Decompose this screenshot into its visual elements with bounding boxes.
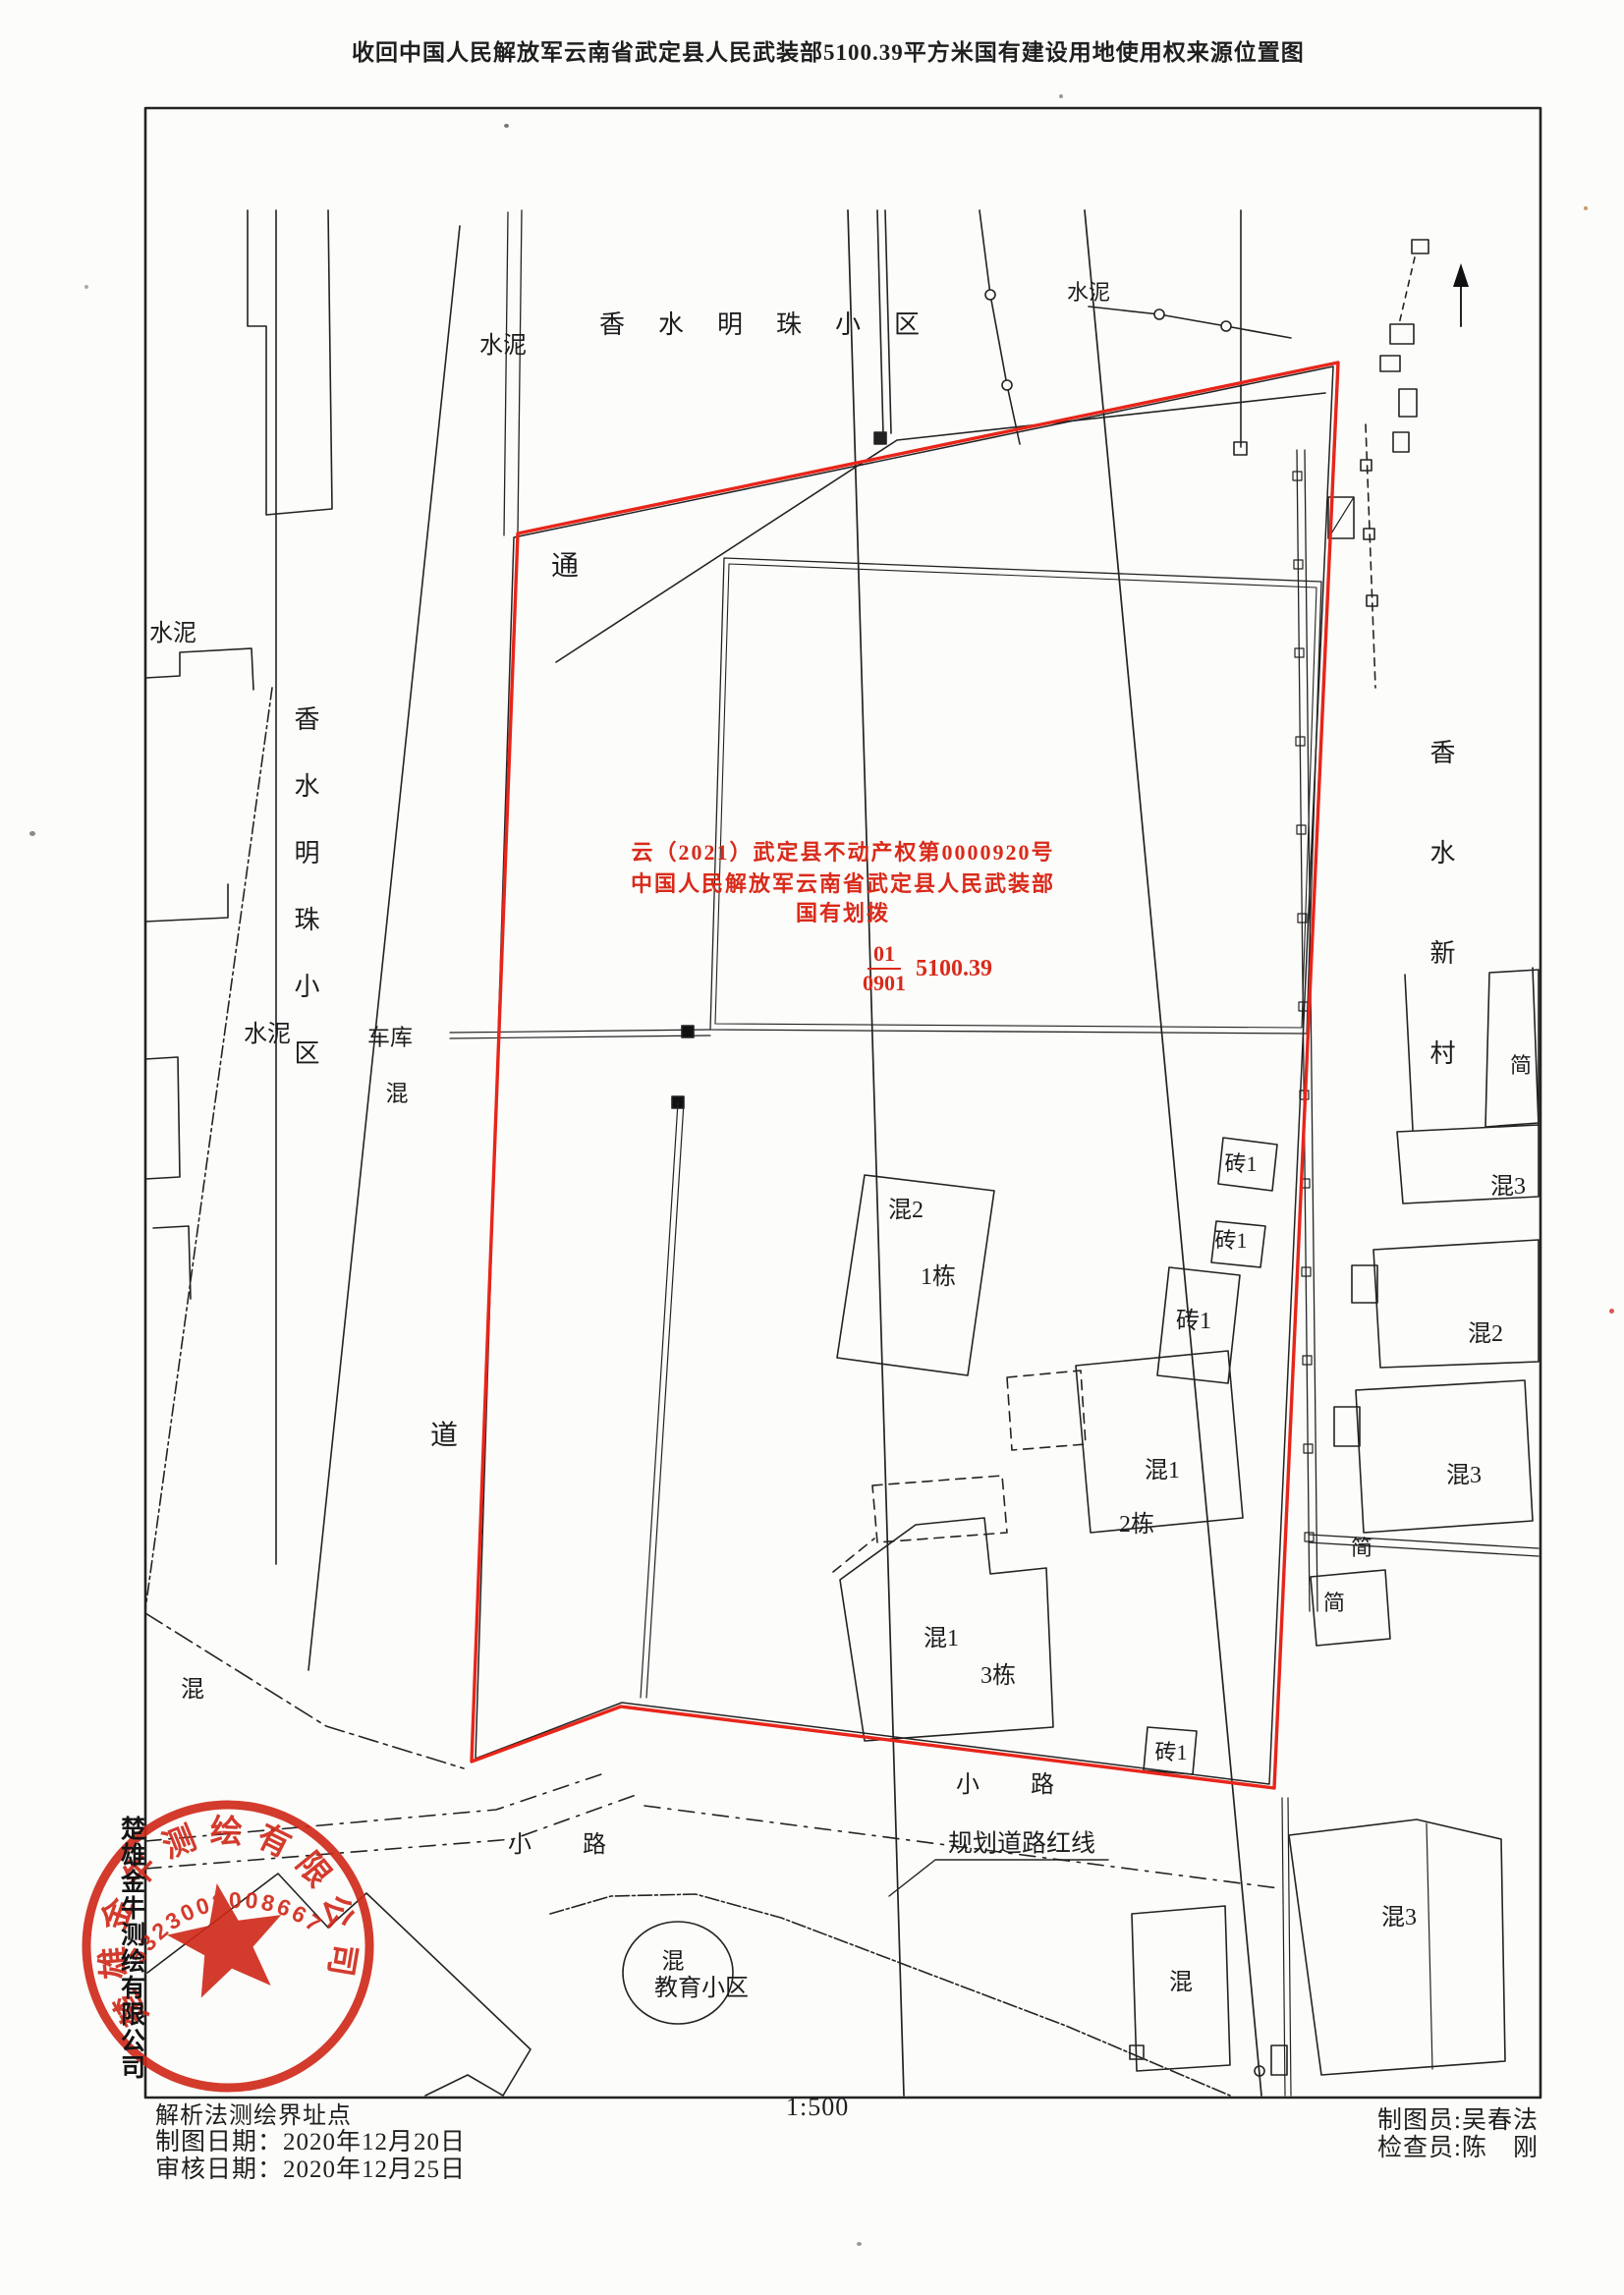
label-right-hun3a: 混3 <box>1490 1175 1526 1199</box>
label-bottomright-hun: 混 <box>1169 1971 1193 1994</box>
map-title: 收回中国人民解放军云南省武定县人民武装部5100.39平方米国有建设用地使用权来… <box>352 33 1305 67</box>
parcel-number: 01 <box>868 941 901 970</box>
company-seal: 楚雄金牛测绘有限公司 5323002008667 <box>64 1782 392 2110</box>
label-building2-name: 2栋 <box>1119 1513 1154 1537</box>
scan-speck <box>504 124 509 128</box>
footer-review-date: 审核日期：2020年12月25日 <box>155 2150 466 2185</box>
map-drawing: 楚雄金牛测绘有限公司 5323002008667 <box>0 0 1624 2295</box>
label-cement-topleft: 水泥 <box>479 334 527 358</box>
scan-speck <box>1059 94 1063 98</box>
cert-allocation-line: 国有划拨 <box>796 896 890 927</box>
parcel-area: 5100.39 <box>916 956 992 982</box>
label-planning-redline: 规划道路红线 <box>948 1832 1095 1857</box>
label-estate-top: 香水明珠小区 <box>599 312 953 338</box>
parcel-code-fraction: 01 0901 5100.39 <box>863 941 992 996</box>
label-education-estate: 教育小区 <box>654 1977 749 2000</box>
label-building3-type: 混1 <box>924 1627 959 1651</box>
label-brick-a: 砖1 <box>1224 1153 1257 1175</box>
scan-speck <box>857 2242 862 2246</box>
label-right-hun3b: 混3 <box>1446 1464 1482 1487</box>
label-hun-bottomleft: 混 <box>181 1678 204 1702</box>
label-estate-left: 香水明珠小区 <box>292 705 317 1106</box>
label-cement-left2: 水泥 <box>244 1023 291 1046</box>
scan-speck <box>29 831 35 836</box>
label-edu-hun: 混 <box>662 1950 685 1973</box>
label-building1-type: 混2 <box>888 1199 924 1222</box>
north-arrow-icon <box>1453 263 1469 287</box>
label-brick-d: 砖1 <box>1154 1742 1187 1763</box>
company-name-vertical: 楚雄金牛测绘有限公司 <box>119 1816 143 2081</box>
label-brick-b: 砖1 <box>1214 1230 1247 1252</box>
label-bottomright-hun3: 混3 <box>1381 1906 1417 1930</box>
scan-speck <box>1584 206 1588 210</box>
footer-scale: 1:500 <box>786 2093 849 2122</box>
label-building1-name: 1栋 <box>921 1265 956 1289</box>
label-right-hun2: 混2 <box>1468 1322 1503 1346</box>
label-jian3: 简 <box>1323 1593 1345 1614</box>
cert-owner-line: 中国人民解放军云南省武定县人民武装部 <box>631 867 1055 898</box>
label-building2-type: 混1 <box>1145 1459 1180 1483</box>
footer-inspector: 检查员:陈 刚 <box>1377 2128 1539 2163</box>
label-street-tong: 通 <box>551 553 579 581</box>
label-street-dao: 道 <box>430 1423 458 1450</box>
scan-speck <box>1609 1309 1614 1314</box>
scanned-map-page: 楚雄金牛测绘有限公司 5323002008667 收回中国人民解放军云南省武定县… <box>0 0 1624 2295</box>
label-path1: 小 路 <box>956 1773 1068 1797</box>
label-garage: 车库 <box>367 1027 413 1049</box>
land-use-code: 0901 <box>863 970 906 996</box>
label-cement-topright: 水泥 <box>1067 282 1110 304</box>
label-building3-name: 3栋 <box>980 1664 1016 1688</box>
label-jian2: 简 <box>1351 1538 1372 1559</box>
label-jian1: 简 <box>1510 1055 1532 1077</box>
label-hun-road: 混 <box>386 1083 409 1105</box>
label-brick-c: 砖1 <box>1176 1310 1211 1333</box>
cert-number-line: 云（2021）武定县不动产权第0000920号 <box>631 835 1054 867</box>
label-cement-left: 水泥 <box>149 622 196 645</box>
parcel-boundary-redline <box>472 363 1338 1788</box>
label-path2: 小 路 <box>508 1833 620 1857</box>
scan-speck <box>84 285 88 289</box>
label-village-right: 香水新村 <box>1428 739 1453 1140</box>
